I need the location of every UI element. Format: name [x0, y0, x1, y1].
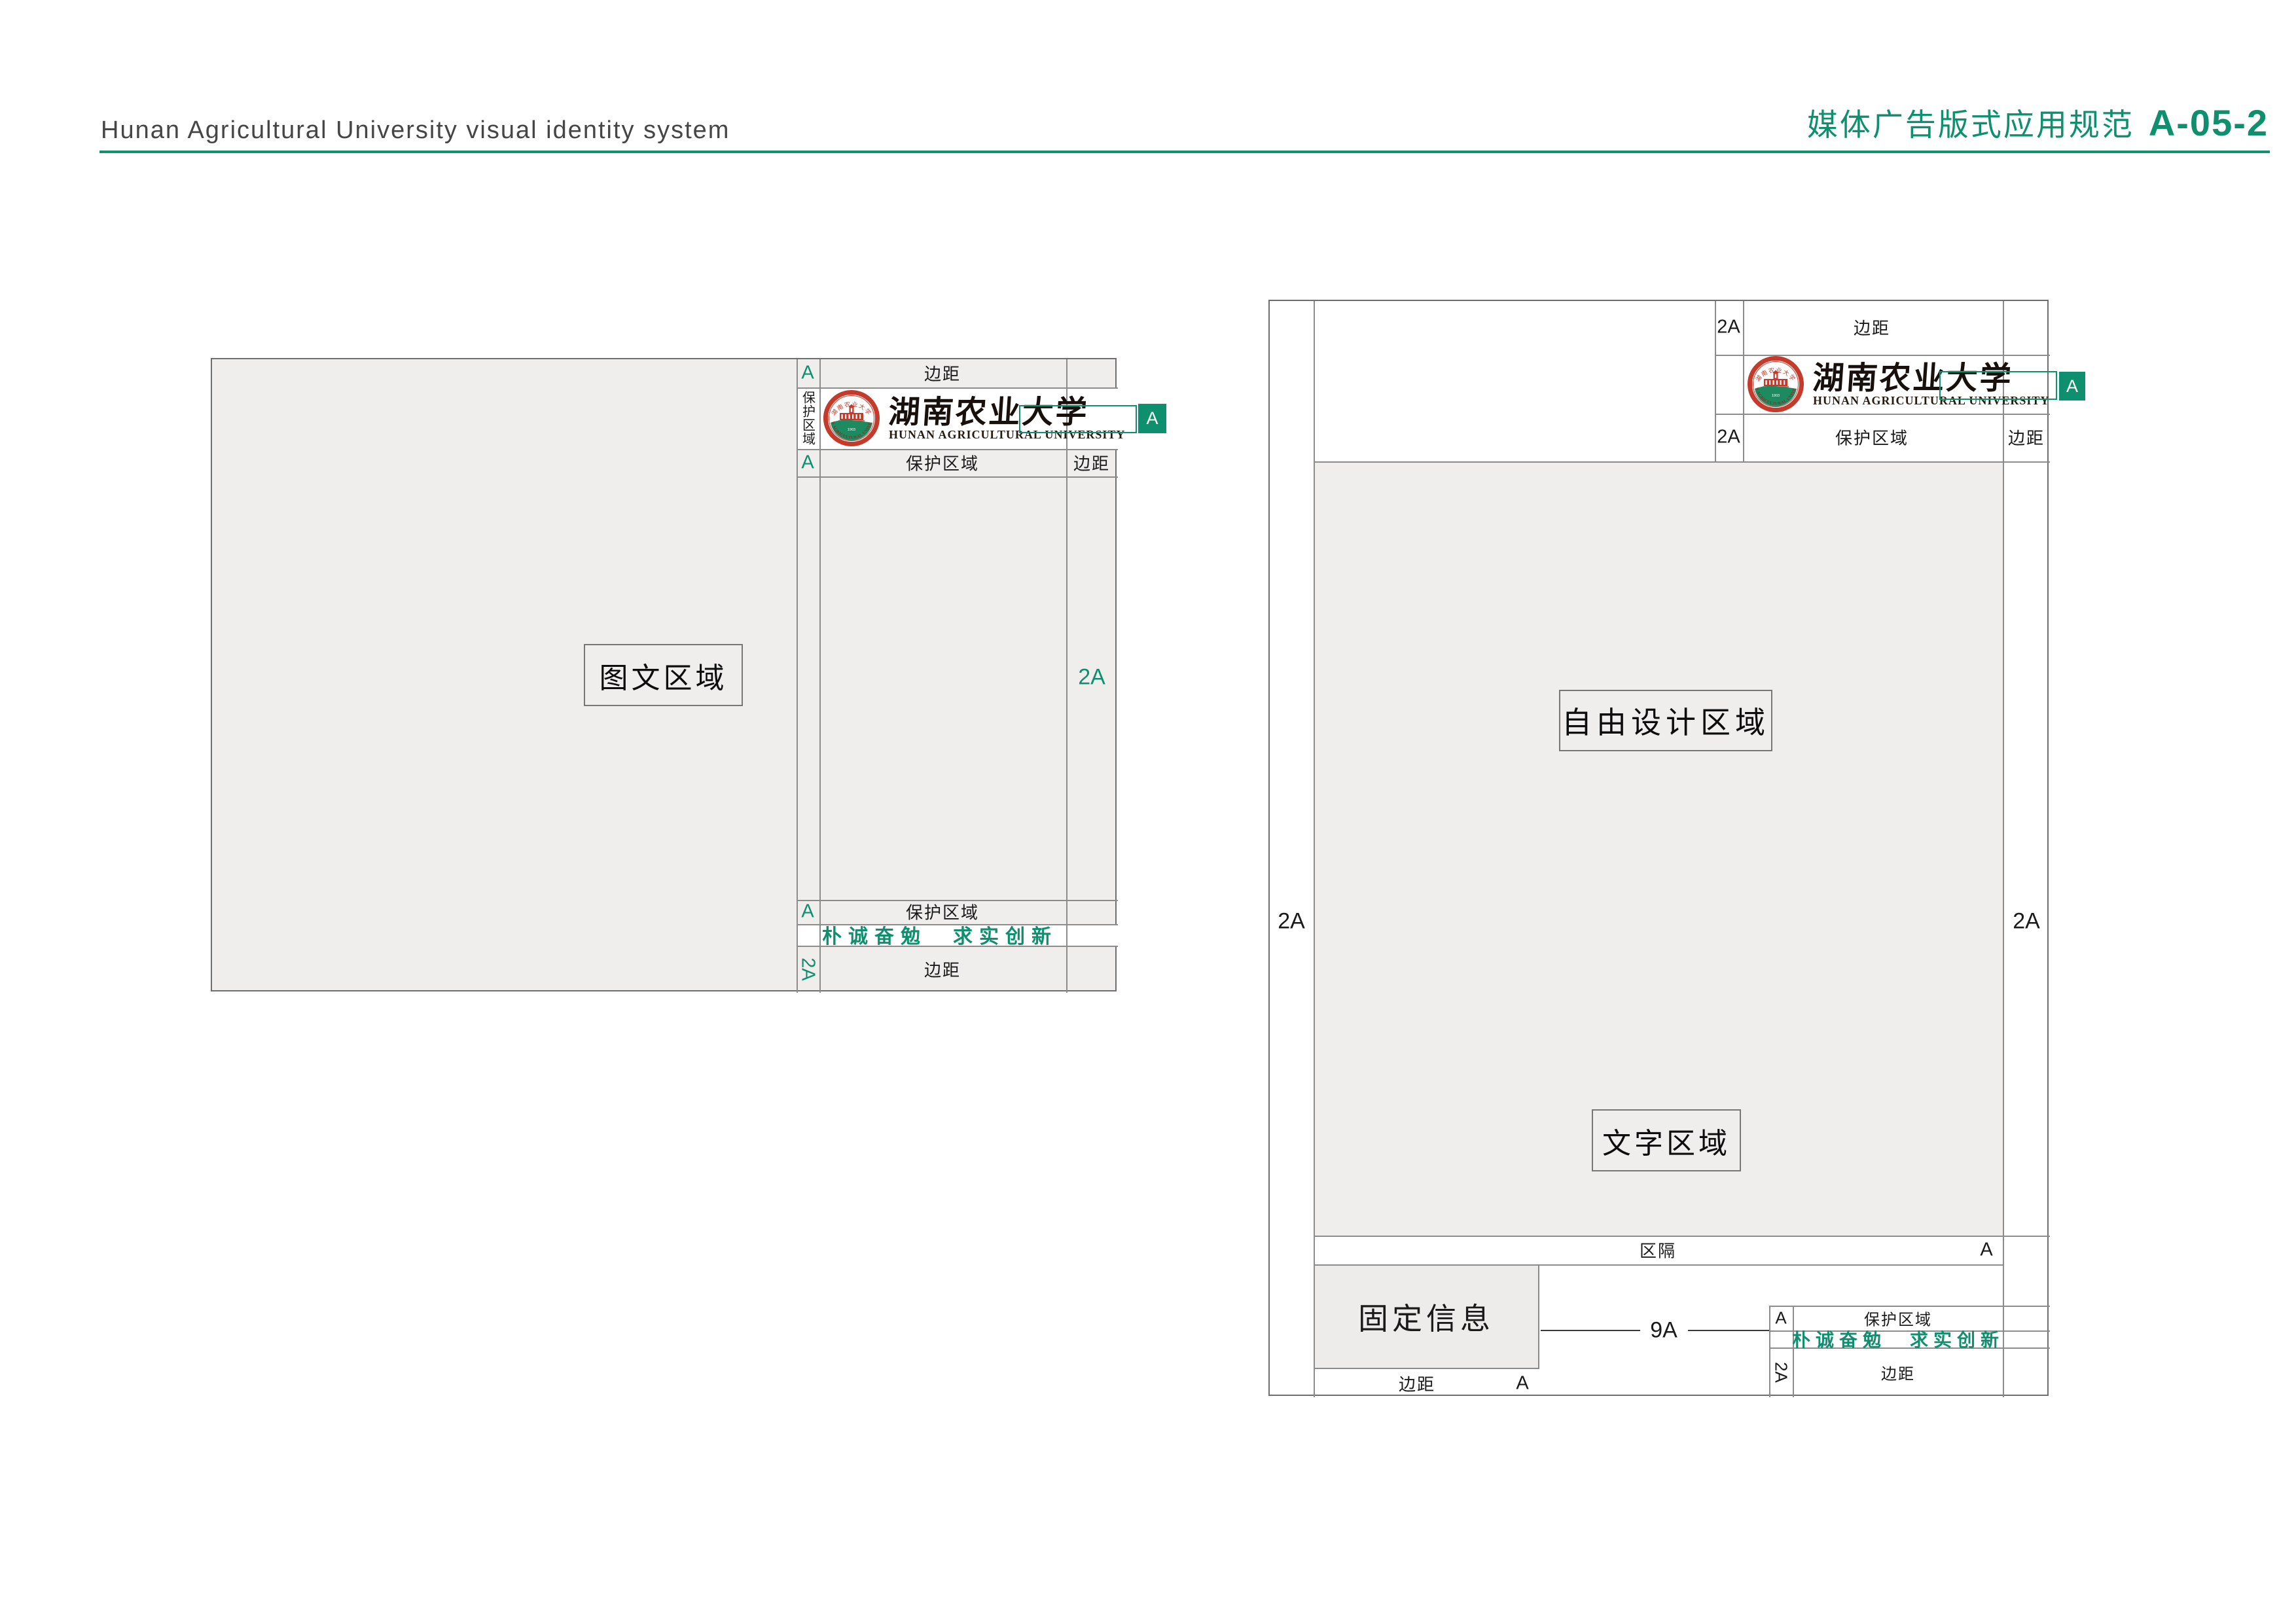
measure-2a-label: 2A: [2013, 909, 2040, 935]
margin-label: 边距: [2008, 425, 2045, 450]
dimension-line: [1541, 1330, 1640, 1331]
protected-area-label: 保护区域: [906, 451, 979, 475]
seal-year: 1903: [848, 428, 855, 432]
grid-line: [2003, 301, 2004, 1397]
grid-line: [1066, 359, 1067, 993]
grid-line: [1715, 301, 1716, 461]
divider-label: 区隔: [1640, 1238, 1676, 1262]
university-seal-icon: 湖南农业大学 1903: [1748, 356, 1804, 412]
university-slogan: 朴诚奋勉 求实创新: [1792, 1326, 2004, 1352]
grid-line: [797, 476, 1118, 478]
measure-a-label: A: [801, 363, 814, 384]
grid-line: [797, 359, 798, 993]
page-title: Hunan Agricultural University visual ide…: [101, 116, 730, 145]
header-rule: [99, 151, 2270, 153]
free-design-area-label: 自由设计区域: [1562, 699, 1770, 742]
measure-2a-label: 2A: [1717, 427, 1740, 448]
grid-line: [1769, 1306, 1770, 1397]
measure-a-badge: A: [1138, 404, 1166, 433]
doc-code: A-05-2: [2149, 101, 2269, 144]
grid-line: [1743, 301, 1744, 461]
measure-a-badge-label: A: [2066, 376, 2078, 397]
image-text-area-label: 图文区域: [600, 654, 728, 696]
measure-a-label: A: [1980, 1240, 1992, 1261]
grid-line: [1314, 301, 1315, 1397]
measure-a-label: A: [1516, 1373, 1528, 1395]
measure-2a-label: 2A: [1278, 909, 1305, 935]
measure-a-label: A: [801, 452, 814, 474]
grid-line: [1314, 1264, 2003, 1266]
measure-a-label: A: [801, 901, 814, 923]
measure-9a-label: 9A: [1650, 1318, 1677, 1344]
doc-title: 媒体广告版式应用规范 A-05-2: [1807, 99, 2269, 145]
margin-label: 边距: [1881, 1361, 1915, 1384]
measure-2a-label: 2A: [1717, 317, 1740, 338]
measure-2a-label: 2A: [1078, 665, 1105, 690]
grid-line: [1715, 414, 2050, 415]
margin-label: 边距: [924, 957, 961, 982]
left-diagram: A 边距 保护区域 A 保护区域 边距 2A A 保护区域 朴诚奋勉 求实创新 …: [211, 358, 1117, 991]
text-area-label: 文字区域: [1602, 1120, 1731, 1162]
clearspace-highlight-rect: [1939, 371, 2057, 400]
measure-2a-label-rotated: 2A: [797, 957, 819, 980]
image-text-area-box: 图文区域: [584, 644, 743, 706]
doc-category: 媒体广告版式应用规范: [1807, 99, 2134, 145]
fixed-info-label: 固定信息: [1358, 1295, 1494, 1338]
margin-label: 边距: [1399, 1372, 1435, 1396]
text-area-box: 文字区域: [1592, 1109, 1741, 1171]
grid-line: [819, 359, 821, 993]
measure-a-badge: A: [2059, 372, 2085, 401]
grid-line: [1314, 1236, 2050, 1237]
margin-label: 边距: [1854, 315, 1890, 340]
university-slogan: 朴诚奋勉 求实创新: [822, 920, 1058, 949]
seal-year: 1903: [1772, 394, 1780, 398]
protected-area-label-vertical: 保护区域: [798, 391, 817, 446]
margin-label: 边距: [924, 361, 961, 385]
grid-line: [1314, 461, 2050, 463]
free-design-area-box: 自由设计区域: [1559, 690, 1772, 751]
university-seal-icon: 湖南农业大学 1903: [823, 390, 880, 446]
dimension-line: [1688, 1330, 1769, 1331]
margin-label: 边距: [1073, 451, 1110, 475]
measure-a-badge-label: A: [1146, 408, 1158, 429]
protected-area-label: 保护区域: [1835, 425, 1909, 450]
measure-2a-label-rotated: 2A: [1771, 1362, 1791, 1383]
page: Hunan Agricultural University visual ide…: [0, 0, 2296, 1623]
measure-a-label: A: [1775, 1308, 1786, 1329]
right-diagram: 2A 边距 2A 保护区域 边距 湖南农业大学: [1268, 300, 2049, 1396]
clearspace-highlight-rect: [1019, 405, 1137, 433]
